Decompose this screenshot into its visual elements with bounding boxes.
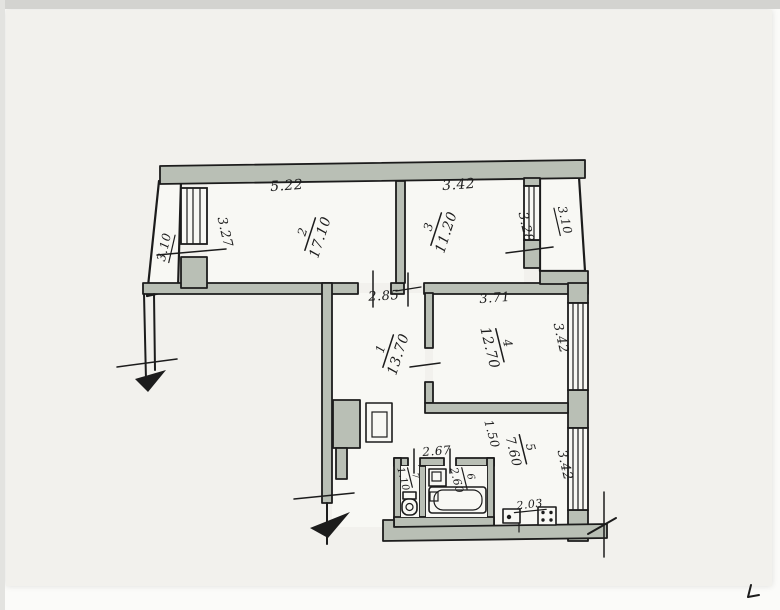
scan-artifact-mark — [748, 585, 759, 597]
wall-right-upper — [568, 283, 588, 303]
wall-top — [160, 160, 585, 184]
dim-bedroom2-width: 3.71 — [479, 290, 511, 307]
window-living-balcony-icon — [181, 188, 207, 244]
dim-kitchen-counter: 2.03 — [513, 496, 546, 512]
dim-living-width: 5.22 — [270, 177, 304, 195]
wall-pier-right-balcony — [524, 240, 540, 268]
wall-hall-left — [322, 283, 332, 503]
wall-under-right-balcony — [540, 271, 588, 284]
wall-bath-top-2 — [420, 458, 444, 466]
wall-room4-bottom — [425, 403, 568, 413]
closet-hall-large — [333, 400, 360, 448]
ventilation-shaft-icon — [366, 403, 392, 442]
closet-hall-narrow — [336, 448, 347, 479]
floor-plan-drawing: 5.22 3.42 2.85 3.71 2.67 2.03 3.27 3.28 … — [0, 0, 780, 610]
dim-bathroom-width: 2.67 — [421, 443, 452, 459]
wall-break-left — [117, 294, 177, 392]
wall-right-middle — [568, 390, 588, 428]
scanned-floor-plan-page: 5.22 3.42 2.85 3.71 2.67 2.03 3.27 3.28 … — [0, 0, 780, 610]
room-bedroom-area — [405, 181, 524, 283]
dim-hall-width: 2.85 — [367, 288, 400, 305]
dim-bedroom-width: 3.42 — [442, 176, 476, 194]
wall-room2-room3-divider — [396, 181, 405, 283]
toilet-icon — [402, 492, 417, 515]
wall-room4-left-lower — [425, 382, 433, 403]
washbasin-icon — [429, 469, 446, 486]
wall-stub-room3-right-top — [524, 178, 540, 186]
wall-pier-left-balcony — [181, 257, 207, 288]
wall-room4-left-upper — [425, 293, 433, 348]
